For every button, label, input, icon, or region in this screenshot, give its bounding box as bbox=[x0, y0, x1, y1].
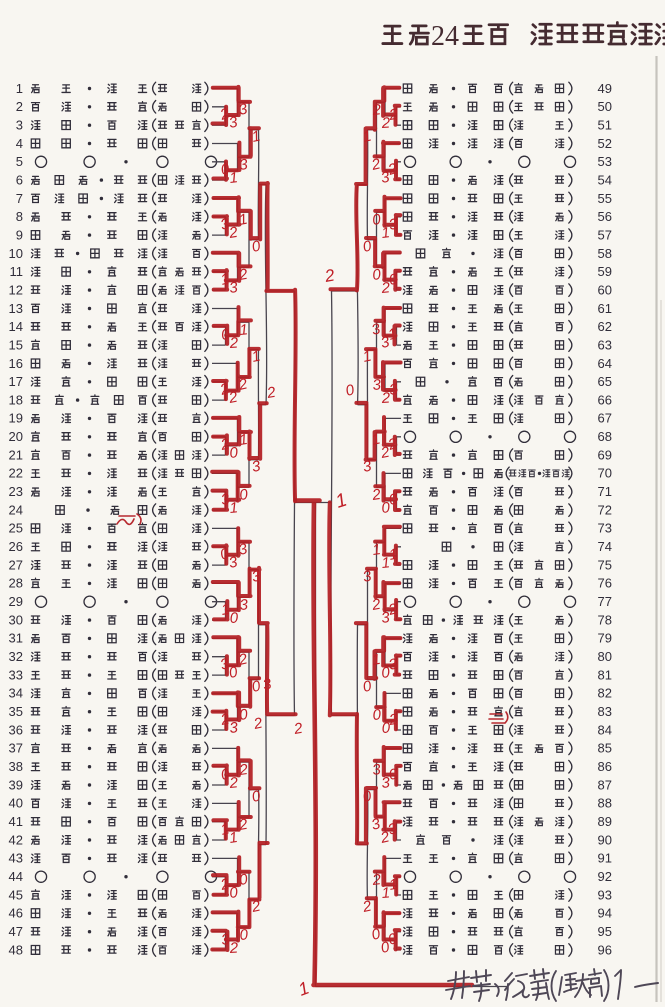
svg-text:77: 77 bbox=[598, 594, 612, 609]
svg-text:28: 28 bbox=[9, 576, 23, 591]
svg-text:75: 75 bbox=[598, 557, 612, 572]
svg-text:83: 83 bbox=[598, 704, 612, 719]
svg-text:88: 88 bbox=[598, 796, 612, 811]
svg-text:25: 25 bbox=[9, 521, 23, 536]
svg-text:58: 58 bbox=[598, 246, 612, 261]
svg-text:12: 12 bbox=[9, 282, 23, 297]
svg-text:8: 8 bbox=[16, 209, 23, 224]
svg-text:0: 0 bbox=[381, 720, 391, 737]
svg-text:67: 67 bbox=[598, 411, 612, 426]
svg-text:3: 3 bbox=[16, 118, 23, 133]
svg-text:51: 51 bbox=[598, 118, 612, 133]
svg-text:27: 27 bbox=[9, 557, 23, 572]
svg-text:93: 93 bbox=[598, 887, 612, 902]
svg-text:32: 32 bbox=[9, 649, 23, 664]
svg-text:7: 7 bbox=[16, 191, 23, 206]
svg-text:57: 57 bbox=[598, 227, 612, 242]
svg-text:65: 65 bbox=[598, 374, 612, 389]
svg-text:72: 72 bbox=[598, 502, 612, 517]
svg-text:4: 4 bbox=[16, 136, 23, 151]
svg-text:2: 2 bbox=[228, 335, 239, 353]
svg-text:1: 1 bbox=[239, 321, 249, 339]
svg-text:0: 0 bbox=[229, 610, 239, 627]
svg-text:30: 30 bbox=[9, 612, 23, 627]
svg-text:73: 73 bbox=[598, 521, 612, 536]
svg-text:2: 2 bbox=[380, 115, 391, 133]
svg-text:52: 52 bbox=[598, 136, 612, 151]
svg-text:39: 39 bbox=[9, 777, 23, 792]
svg-text:71: 71 bbox=[598, 484, 612, 499]
svg-text:82: 82 bbox=[598, 686, 612, 701]
svg-text:74: 74 bbox=[598, 539, 612, 554]
svg-text:87: 87 bbox=[598, 777, 612, 792]
svg-text:96: 96 bbox=[598, 942, 612, 957]
svg-text:33: 33 bbox=[9, 667, 23, 682]
svg-text:59: 59 bbox=[598, 264, 612, 279]
svg-text:79: 79 bbox=[598, 631, 612, 646]
svg-text:2: 2 bbox=[380, 390, 391, 408]
svg-text:15: 15 bbox=[9, 337, 23, 352]
svg-text:10: 10 bbox=[9, 246, 23, 261]
svg-text:54: 54 bbox=[598, 172, 612, 187]
svg-text:1: 1 bbox=[229, 499, 239, 517]
svg-text:16: 16 bbox=[9, 356, 23, 371]
svg-text:43: 43 bbox=[9, 851, 23, 866]
svg-text:41: 41 bbox=[9, 814, 23, 829]
svg-text:70: 70 bbox=[598, 466, 612, 481]
svg-text:95: 95 bbox=[598, 924, 612, 939]
svg-text:69: 69 bbox=[598, 447, 612, 462]
svg-text:19: 19 bbox=[9, 411, 23, 426]
svg-text:84: 84 bbox=[598, 722, 612, 737]
svg-text:6: 6 bbox=[16, 172, 23, 187]
svg-text:45: 45 bbox=[9, 887, 23, 902]
svg-text:1: 1 bbox=[229, 169, 239, 187]
svg-text:55: 55 bbox=[598, 191, 612, 206]
svg-text:50: 50 bbox=[598, 99, 612, 114]
svg-text:89: 89 bbox=[598, 814, 612, 829]
svg-text:11: 11 bbox=[10, 264, 24, 279]
svg-text:42: 42 bbox=[9, 832, 23, 847]
svg-text:47: 47 bbox=[9, 924, 23, 939]
svg-text:92: 92 bbox=[598, 869, 612, 884]
svg-text:46: 46 bbox=[9, 906, 23, 921]
svg-text:18: 18 bbox=[9, 392, 23, 407]
svg-text:61: 61 bbox=[598, 301, 612, 316]
svg-text:76: 76 bbox=[598, 576, 612, 591]
svg-text:53: 53 bbox=[598, 154, 612, 169]
svg-text:63: 63 bbox=[598, 337, 612, 352]
svg-text:86: 86 bbox=[598, 759, 612, 774]
svg-text:40: 40 bbox=[9, 796, 23, 811]
svg-text:78: 78 bbox=[598, 612, 612, 627]
svg-text:62: 62 bbox=[598, 319, 612, 334]
svg-text:68: 68 bbox=[598, 429, 612, 444]
svg-text:56: 56 bbox=[598, 209, 612, 224]
svg-text:23: 23 bbox=[9, 484, 23, 499]
svg-text:9: 9 bbox=[16, 227, 23, 242]
svg-text:94: 94 bbox=[598, 906, 612, 921]
svg-text:26: 26 bbox=[9, 539, 23, 554]
svg-text:17: 17 bbox=[9, 374, 23, 389]
svg-text:1: 1 bbox=[381, 224, 391, 242]
svg-text:34: 34 bbox=[9, 686, 23, 701]
svg-text:21: 21 bbox=[9, 447, 23, 462]
svg-text:60: 60 bbox=[598, 282, 612, 297]
svg-text:91: 91 bbox=[598, 851, 612, 866]
svg-text:20: 20 bbox=[9, 429, 23, 444]
svg-text:1: 1 bbox=[381, 884, 391, 902]
svg-text:35: 35 bbox=[9, 704, 23, 719]
svg-text:49: 49 bbox=[598, 81, 612, 96]
svg-text:1: 1 bbox=[16, 81, 23, 96]
svg-text:14: 14 bbox=[9, 319, 23, 334]
svg-text:2: 2 bbox=[228, 940, 239, 958]
svg-text:81: 81 bbox=[598, 667, 612, 682]
svg-text:37: 37 bbox=[9, 741, 23, 756]
svg-text:24: 24 bbox=[9, 502, 23, 517]
svg-text:38: 38 bbox=[9, 759, 23, 774]
svg-text:5: 5 bbox=[16, 154, 23, 169]
svg-text:31: 31 bbox=[9, 631, 23, 646]
svg-text:1: 1 bbox=[381, 554, 391, 572]
svg-text:85: 85 bbox=[598, 741, 612, 756]
svg-text:64: 64 bbox=[598, 356, 612, 371]
svg-text:13: 13 bbox=[9, 301, 23, 316]
svg-text:66: 66 bbox=[598, 392, 612, 407]
svg-text:22: 22 bbox=[9, 466, 23, 481]
svg-text:29: 29 bbox=[9, 594, 23, 609]
svg-text:24: 24 bbox=[431, 21, 459, 52]
svg-text:80: 80 bbox=[598, 649, 612, 664]
svg-text:2: 2 bbox=[16, 99, 23, 114]
svg-text:90: 90 bbox=[598, 832, 612, 847]
svg-text:36: 36 bbox=[9, 722, 23, 737]
svg-text:48: 48 bbox=[9, 942, 23, 957]
svg-text:44: 44 bbox=[9, 869, 23, 884]
